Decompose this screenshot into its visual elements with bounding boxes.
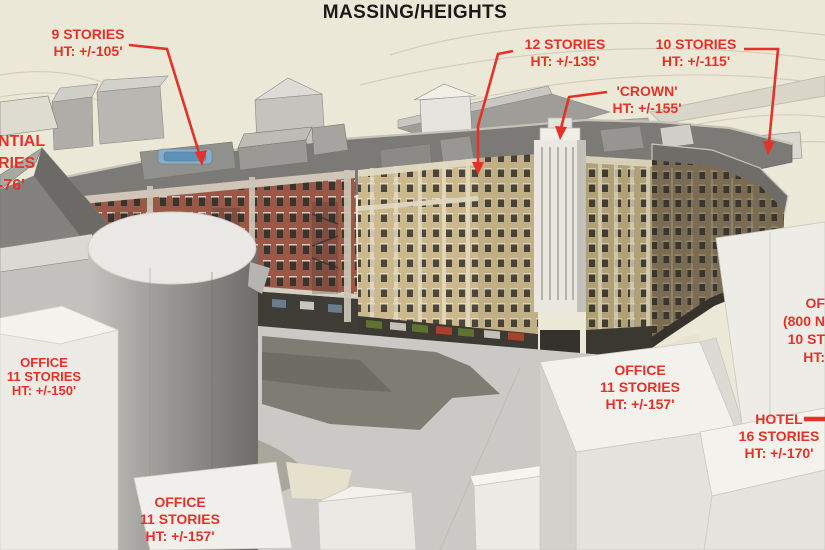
massing-rendering bbox=[0, 0, 825, 550]
page-title: MASSING/HEIGHTS bbox=[250, 2, 580, 24]
label-hotel-line1: HOTEL bbox=[733, 411, 825, 428]
label-residential-line2: RIES bbox=[0, 153, 98, 175]
label-12-stories: 12 STORIES HT: +/-135' bbox=[512, 36, 618, 70]
massing-heights-slide: MASSING/HEIGHTS 9 STORIES HT: +/-105' 12… bbox=[0, 0, 825, 550]
tan-building bbox=[358, 154, 538, 356]
label-office-right-line2: (800 N bbox=[777, 312, 825, 330]
label-12-stories-line2: HT: +/-135' bbox=[512, 53, 618, 70]
label-crown: 'CROWN' HT: +/-155' bbox=[602, 83, 692, 117]
label-office-right-cutoff: OF (800 N 10 ST HT: bbox=[777, 294, 825, 366]
label-office-center-line3: HT: +/-157' bbox=[590, 396, 690, 413]
label-12-stories-line1: 12 STORIES bbox=[512, 36, 618, 53]
label-9-stories: 9 STORIES HT: +/-105' bbox=[40, 26, 136, 60]
label-office-bottom-line1: OFFICE bbox=[125, 494, 235, 511]
label-10-stories-line1: 10 STORIES bbox=[648, 36, 744, 53]
label-hotel-line3: HT: +/-170' bbox=[733, 445, 825, 462]
label-crown-line1: 'CROWN' bbox=[602, 83, 692, 100]
label-office-left: OFFICE 11 STORIES HT: +/-150' bbox=[0, 356, 90, 398]
label-crown-line2: HT: +/-155' bbox=[602, 100, 692, 117]
label-office-left-line3: HT: +/-150' bbox=[0, 384, 90, 398]
label-9-stories-line1: 9 STORIES bbox=[40, 26, 136, 43]
label-office-left-line1: OFFICE bbox=[0, 356, 90, 370]
label-office-bottom-line3: HT: +/-157' bbox=[125, 528, 235, 545]
label-office-center: OFFICE 11 STORIES HT: +/-157' bbox=[590, 362, 690, 413]
label-hotel: HOTEL 16 STORIES HT: +/-170' bbox=[733, 411, 825, 462]
label-office-center-line1: OFFICE bbox=[590, 362, 690, 379]
label-office-left-line2: 11 STORIES bbox=[0, 370, 90, 384]
label-10-stories: 10 STORIES HT: +/-115' bbox=[648, 36, 744, 70]
label-office-bottom: OFFICE 11 STORIES HT: +/-157' bbox=[125, 494, 235, 545]
label-10-stories-line2: HT: +/-115' bbox=[648, 53, 744, 70]
label-residential-line1: NTIAL bbox=[0, 131, 98, 153]
label-office-right-line3: 10 ST bbox=[777, 330, 825, 348]
label-9-stories-line2: HT: +/-105' bbox=[40, 43, 136, 60]
label-residential-cutoff: NTIAL RIES -76' bbox=[0, 131, 98, 197]
label-hotel-line2: 16 STORIES bbox=[733, 428, 825, 445]
label-residential-line3: -76' bbox=[0, 175, 98, 197]
label-office-right-line1: OF bbox=[777, 294, 825, 312]
label-office-right-line4: HT: bbox=[777, 348, 825, 366]
label-office-bottom-line2: 11 STORIES bbox=[125, 511, 235, 528]
label-office-center-line2: 11 STORIES bbox=[590, 379, 690, 396]
